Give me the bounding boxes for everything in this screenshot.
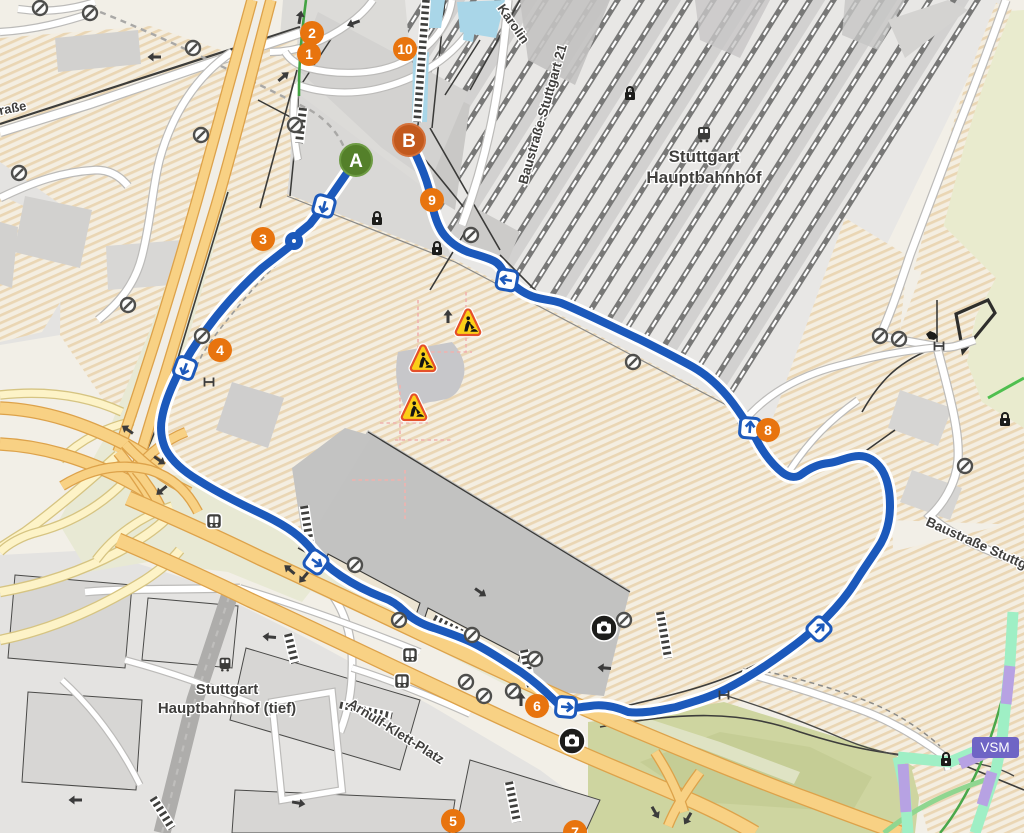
svg-text:5: 5	[449, 813, 457, 829]
svg-text:Hauptbahnhof: Hauptbahnhof	[646, 168, 762, 187]
svg-text:Stuttgart: Stuttgart	[669, 147, 740, 166]
svg-text:A: A	[349, 151, 363, 172]
svg-text:4: 4	[216, 342, 224, 358]
svg-text:6: 6	[533, 698, 541, 714]
svg-text:Stuttgart: Stuttgart	[196, 681, 259, 698]
svg-text:8: 8	[764, 422, 772, 438]
svg-text:Hauptbahnhof (tief): Hauptbahnhof (tief)	[158, 700, 296, 717]
svg-text:1: 1	[305, 46, 313, 62]
svg-text:9: 9	[428, 192, 436, 208]
svg-text:10: 10	[397, 41, 413, 57]
svg-text:B: B	[402, 131, 416, 152]
svg-text:2: 2	[308, 25, 316, 41]
svg-text:7: 7	[571, 824, 579, 833]
svg-text:VSM: VSM	[980, 740, 1009, 755]
svg-text:3: 3	[259, 231, 267, 247]
